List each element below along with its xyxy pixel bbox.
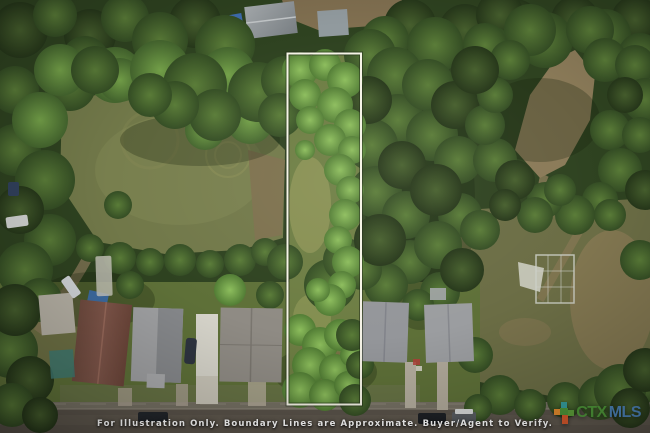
logo-text-ctx: CTX [576, 405, 607, 421]
disclaimer-text: For Illustration Only. Boundary Lines ar… [0, 419, 650, 429]
logo-text-mls: MLS [609, 405, 641, 421]
aerial-photo: For Illustration Only. Boundary Lines ar… [0, 0, 650, 433]
aerial-scene [0, 0, 650, 433]
ctxmls-plus-icon [554, 402, 574, 424]
ctxmls-logo: CTXMLS [554, 402, 641, 424]
